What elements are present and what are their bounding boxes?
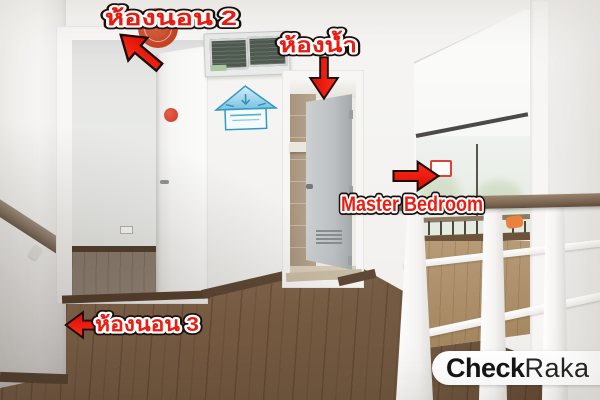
left-wall-baseboard	[0, 372, 68, 384]
sticker-body	[225, 108, 267, 129]
bedroom2-label: ห้องนอน 2 ห้องนอน 2	[96, 1, 246, 33]
logo-text-regular: Raka	[525, 353, 590, 384]
bathroom-door	[306, 94, 352, 270]
logo-text-bold: Check	[446, 353, 525, 384]
checkraka-watermark: CheckRaka	[432, 351, 600, 385]
bathroom-door-handle	[306, 184, 313, 189]
svg-text:ห้องนอน 3: ห้องนอน 3	[95, 313, 199, 336]
svg-text:ห้องนอน 2: ห้องนอน 2	[105, 6, 237, 30]
bathroom-interior	[290, 80, 356, 280]
interior-photo: ห้องนอน 2 ห้องนอน 2 ห้องน้ำ ห้องน้ำ Mast…	[0, 0, 600, 400]
door-louvre-vent	[316, 228, 342, 244]
bedroom2-door	[156, 46, 206, 300]
window-top-frame	[416, 112, 529, 138]
bathroom-label: ห้องน้ำ ห้องน้ำ	[272, 30, 364, 60]
red-round-sticker-on-door	[164, 108, 178, 122]
door-hinge	[349, 110, 353, 119]
orange-sticker-on-glass	[505, 215, 524, 229]
svg-text:Master Bedroom: Master Bedroom	[341, 193, 483, 216]
svg-text:ห้องน้ำ: ห้องน้ำ	[279, 30, 357, 57]
breaker-label-tag	[210, 65, 226, 72]
power-outlet	[120, 226, 133, 234]
bedroom3-label: ห้องนอน 3 ห้องนอน 3	[88, 309, 206, 339]
insulation-house-sticker	[213, 83, 279, 135]
bathroom-arrow	[303, 55, 345, 101]
master-bedroom-label: Master Bedroom Master Bedroom	[336, 189, 488, 219]
door-hinge	[348, 256, 352, 265]
bedroom2-door-handle	[160, 180, 169, 184]
